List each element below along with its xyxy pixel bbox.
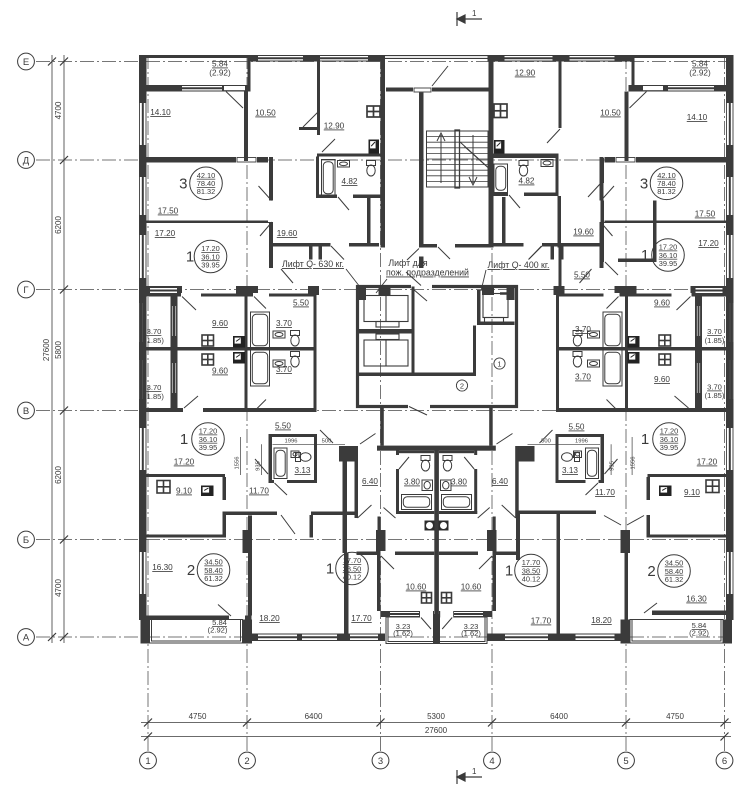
svg-text:6: 6	[722, 756, 727, 767]
svg-text:5.50: 5.50	[275, 422, 291, 431]
svg-text:19.60: 19.60	[277, 229, 298, 238]
svg-text:(2.92): (2.92)	[208, 626, 228, 635]
svg-text:6200: 6200	[54, 216, 63, 234]
svg-text:17.20: 17.20	[698, 239, 719, 248]
svg-text:17.20: 17.20	[697, 458, 718, 467]
svg-text:2: 2	[647, 563, 655, 580]
svg-text:3: 3	[640, 175, 648, 192]
svg-text:39.95: 39.95	[201, 260, 220, 269]
svg-text:1556: 1556	[631, 457, 637, 470]
svg-text:Лифт Q- 400 кг.: Лифт Q- 400 кг.	[488, 260, 550, 270]
svg-text:1: 1	[641, 247, 649, 264]
svg-text:5: 5	[623, 756, 628, 767]
svg-text:9.10: 9.10	[176, 487, 192, 496]
svg-text:5.50: 5.50	[574, 271, 590, 280]
svg-text:3.70: 3.70	[276, 365, 292, 374]
svg-text:5.84: 5.84	[212, 60, 228, 69]
svg-text:14.10: 14.10	[150, 108, 171, 117]
svg-text:4: 4	[489, 756, 494, 767]
svg-text:(1.85): (1.85)	[705, 336, 725, 345]
svg-text:2: 2	[460, 382, 464, 391]
svg-text:3.70: 3.70	[575, 373, 591, 382]
svg-text:(2.92): (2.92)	[689, 629, 709, 638]
svg-text:1996: 1996	[575, 439, 588, 445]
svg-text:500: 500	[322, 439, 332, 445]
svg-text:9.60: 9.60	[654, 299, 670, 308]
svg-text:(2.92): (2.92)	[209, 69, 231, 78]
svg-text:(2.92): (2.92)	[689, 69, 711, 78]
svg-text:39.95: 39.95	[659, 259, 678, 268]
svg-text:6400: 6400	[550, 712, 568, 721]
svg-text:935: 935	[256, 461, 262, 471]
svg-text:4750: 4750	[189, 712, 207, 721]
svg-text:1: 1	[505, 563, 513, 580]
svg-text:(1.62): (1.62)	[461, 629, 481, 638]
svg-text:12.90: 12.90	[515, 69, 536, 78]
svg-text:17.70: 17.70	[351, 614, 372, 623]
svg-text:6400: 6400	[305, 712, 323, 721]
svg-text:3.70: 3.70	[707, 327, 722, 336]
svg-text:27600: 27600	[42, 338, 51, 361]
svg-text:1: 1	[472, 9, 477, 18]
svg-text:6.40: 6.40	[362, 477, 378, 486]
svg-text:4700: 4700	[54, 579, 63, 597]
svg-text:(1.85): (1.85)	[144, 336, 164, 345]
svg-text:Лифт для: Лифт для	[388, 258, 427, 268]
svg-text:61.32: 61.32	[665, 575, 684, 584]
svg-text:10.60: 10.60	[461, 583, 482, 592]
svg-text:3.70: 3.70	[147, 383, 162, 392]
svg-text:9.60: 9.60	[654, 375, 670, 384]
svg-text:12.90: 12.90	[324, 122, 345, 131]
svg-text:Д: Д	[23, 156, 30, 167]
svg-text:18.20: 18.20	[591, 616, 612, 625]
svg-text:27600: 27600	[425, 726, 448, 735]
svg-text:1: 1	[180, 431, 188, 448]
svg-text:4.82: 4.82	[519, 177, 535, 186]
svg-text:(1.62): (1.62)	[393, 629, 413, 638]
svg-text:2: 2	[187, 562, 195, 579]
svg-text:(1.85): (1.85)	[705, 391, 725, 400]
svg-text:(1.85): (1.85)	[144, 392, 164, 401]
svg-text:10.60: 10.60	[406, 583, 427, 592]
svg-text:61.32: 61.32	[204, 574, 223, 583]
svg-text:3.80: 3.80	[404, 478, 420, 487]
svg-text:3: 3	[378, 756, 383, 767]
svg-text:1: 1	[497, 360, 501, 369]
svg-text:1: 1	[186, 249, 194, 266]
svg-text:Е: Е	[23, 57, 29, 68]
svg-text:17.70: 17.70	[531, 617, 552, 626]
svg-text:9.10: 9.10	[684, 488, 700, 497]
svg-text:18.20: 18.20	[259, 614, 280, 623]
svg-text:39.95: 39.95	[199, 443, 218, 452]
svg-text:3.70: 3.70	[147, 327, 162, 336]
svg-text:5.50: 5.50	[293, 299, 309, 308]
svg-text:4750: 4750	[666, 712, 684, 721]
svg-text:17.50: 17.50	[695, 210, 716, 219]
svg-text:10.50: 10.50	[600, 109, 621, 118]
svg-text:А: А	[23, 633, 30, 644]
svg-text:4.82: 4.82	[342, 177, 358, 186]
svg-text:6.40: 6.40	[492, 477, 508, 486]
svg-text:81.32: 81.32	[657, 187, 676, 196]
svg-text:935: 935	[610, 461, 616, 471]
svg-text:39.95: 39.95	[660, 443, 679, 452]
svg-text:1: 1	[641, 431, 649, 448]
svg-text:16.30: 16.30	[152, 563, 173, 572]
svg-text:6200: 6200	[54, 466, 63, 484]
svg-text:5800: 5800	[54, 341, 63, 359]
svg-text:14.10: 14.10	[687, 113, 708, 122]
svg-text:Г: Г	[23, 285, 28, 296]
svg-text:16.30: 16.30	[686, 595, 707, 604]
svg-text:3.13: 3.13	[295, 466, 311, 475]
svg-text:1: 1	[145, 756, 150, 767]
svg-text:17.20: 17.20	[174, 458, 195, 467]
svg-text:40.12: 40.12	[522, 574, 541, 583]
svg-text:3: 3	[179, 175, 187, 192]
svg-text:1996: 1996	[285, 439, 298, 445]
svg-text:1: 1	[326, 561, 334, 578]
svg-text:9.60: 9.60	[212, 319, 228, 328]
svg-text:3.80: 3.80	[451, 478, 467, 487]
svg-text:5300: 5300	[427, 712, 445, 721]
svg-text:4700: 4700	[54, 101, 63, 119]
svg-text:В: В	[23, 406, 29, 417]
svg-text:11.70: 11.70	[249, 487, 269, 496]
svg-text:3.70: 3.70	[276, 319, 292, 328]
svg-text:Б: Б	[23, 535, 29, 546]
svg-text:2: 2	[244, 756, 249, 767]
svg-text:19.60: 19.60	[573, 228, 594, 237]
svg-text:81.32: 81.32	[197, 187, 216, 196]
svg-text:пож. подразделений: пож. подразделений	[386, 268, 469, 278]
svg-text:500: 500	[541, 439, 551, 445]
svg-text:3.13: 3.13	[562, 466, 578, 475]
svg-text:9.60: 9.60	[212, 367, 228, 376]
svg-text:3.70: 3.70	[575, 325, 591, 334]
svg-text:5.84: 5.84	[692, 60, 708, 69]
svg-text:1556: 1556	[235, 457, 241, 470]
svg-text:10.50: 10.50	[255, 109, 276, 118]
svg-text:17.50: 17.50	[158, 207, 179, 216]
svg-text:Лифт Q- 630 кг.: Лифт Q- 630 кг.	[282, 259, 344, 269]
svg-text:5.50: 5.50	[569, 423, 585, 432]
svg-text:40.12: 40.12	[343, 572, 362, 581]
svg-text:1: 1	[472, 767, 477, 776]
svg-text:17.20: 17.20	[155, 229, 176, 238]
svg-text:11.70: 11.70	[595, 488, 615, 497]
